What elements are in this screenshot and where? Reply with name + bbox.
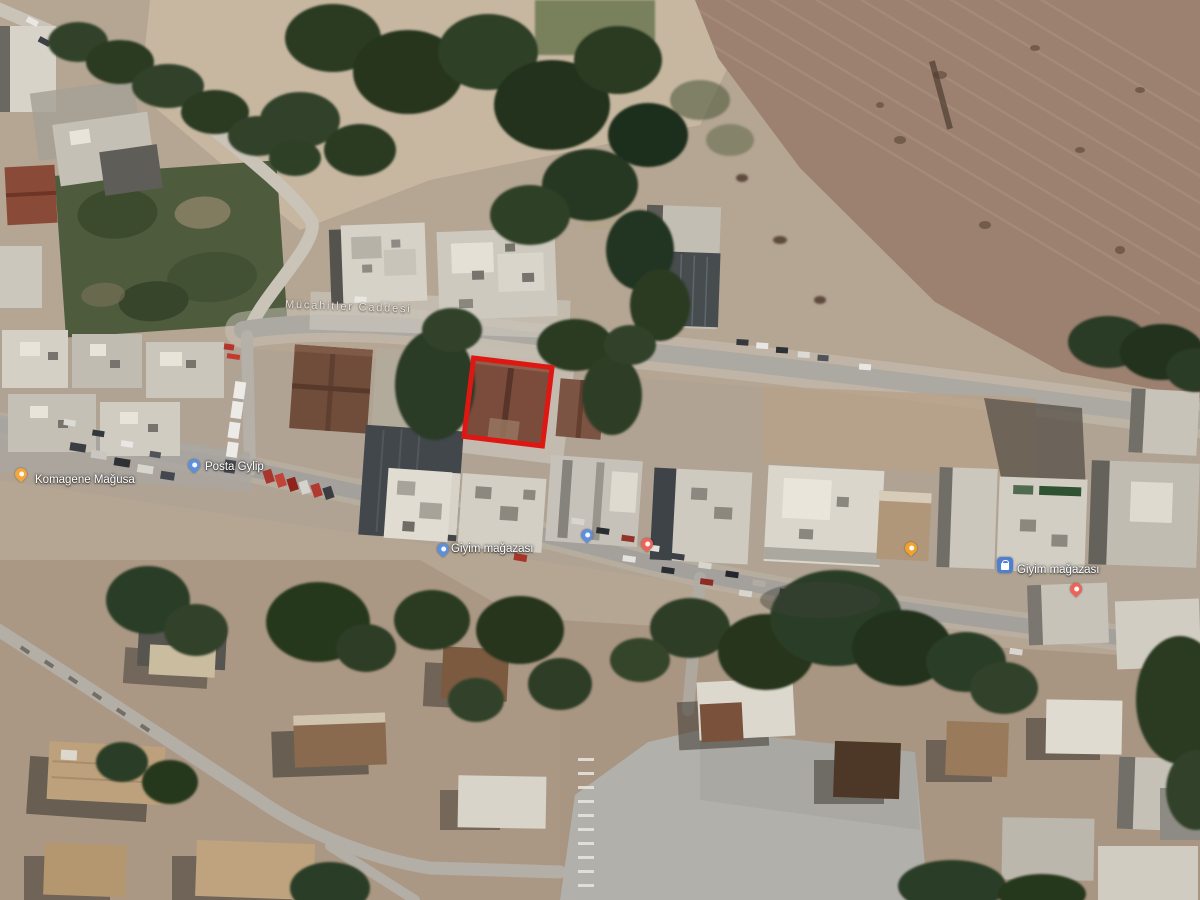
marker-label: Giyim mağazası bbox=[1017, 564, 1099, 576]
street-label: Mücahitler Caddesi bbox=[285, 299, 412, 316]
marker-label: Giyim mağazası bbox=[451, 543, 533, 555]
red-pin-icon[interactable] bbox=[1068, 581, 1085, 598]
blue-pin-icon[interactable] bbox=[186, 457, 203, 474]
orange-pin-icon[interactable] bbox=[13, 466, 30, 483]
map-overlay: Mücahitler Caddesi Komagene MağusaPosta … bbox=[0, 0, 1200, 900]
blue-pin-icon[interactable] bbox=[435, 541, 452, 558]
yellow-pin-icon[interactable] bbox=[903, 540, 920, 557]
red-pin-icon[interactable] bbox=[639, 536, 656, 553]
highlighted-parcel-annotation bbox=[461, 355, 555, 449]
marker-label: Posta Gylip bbox=[205, 461, 264, 473]
blue-square-icon[interactable] bbox=[997, 557, 1013, 573]
map-viewport[interactable]: Mücahitler Caddesi Komagene MağusaPosta … bbox=[0, 0, 1200, 900]
marker-label: Komagene Mağusa bbox=[35, 474, 135, 486]
blue-pin-icon[interactable] bbox=[579, 527, 596, 544]
